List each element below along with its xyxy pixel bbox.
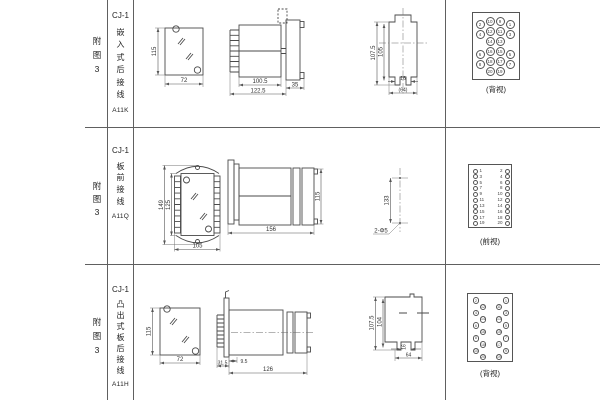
model-label-row3: CJ-1 凸出式板后接线 A11H xyxy=(108,286,133,388)
dim-flange-w: 35 xyxy=(292,83,299,89)
terminal-number-1: 1 xyxy=(480,169,490,174)
label-char: 图 xyxy=(93,195,102,204)
terminal-pin xyxy=(505,180,510,185)
dim-hole-span: 133 xyxy=(385,195,391,206)
terminal-11: 11 xyxy=(496,304,503,311)
model-name: CJ-1 xyxy=(112,147,129,155)
dim-rear-w: 64 xyxy=(406,353,412,359)
terminal-6: 6 xyxy=(473,322,480,329)
terminal-17: 17 xyxy=(496,57,505,66)
terminal-number-15: 15 xyxy=(480,210,490,215)
terminal-pin xyxy=(473,221,478,226)
terminal-7: 7 xyxy=(503,335,510,342)
dim-cutout-w: 72 xyxy=(181,78,188,84)
terminal-number-11: 11 xyxy=(480,198,490,203)
model-name: CJ-1 xyxy=(112,12,129,20)
terminal-number-19: 19 xyxy=(480,221,490,226)
terminal-4: 4 xyxy=(473,310,480,317)
terminal-pin xyxy=(473,215,478,220)
terminal-19: 19 xyxy=(496,354,503,361)
terminal-number-4: 4 xyxy=(493,175,503,180)
terminal-3: 3 xyxy=(503,310,510,317)
dim-body-w: 100.5 xyxy=(252,79,268,85)
terminal-number-3: 3 xyxy=(480,175,490,180)
terminal-view-label-row2: (前视) xyxy=(480,236,500,247)
terminal-number-16: 16 xyxy=(493,210,503,215)
label-char: 前 xyxy=(117,174,125,182)
label-char: 后 xyxy=(117,66,125,74)
terminal-number-6: 6 xyxy=(493,181,503,186)
dim-side-len: 156 xyxy=(266,227,277,233)
dim-front-h1: 149 xyxy=(159,199,165,210)
terminal-1: 1 xyxy=(506,20,515,29)
terminal-6: 6 xyxy=(476,50,485,59)
terminal-view-back-row3: 2468101214161820111315171913579 xyxy=(467,293,513,362)
terminal-19: 19 xyxy=(496,67,505,76)
mount-type-label: 板前接线 xyxy=(117,159,125,210)
terminal-pin xyxy=(505,215,510,220)
terminal-pin xyxy=(505,221,510,226)
terminal-14: 14 xyxy=(486,37,495,46)
terminal-20: 20 xyxy=(480,354,487,361)
figure-page: 附图3 附图3 附图3 CJ-1 嵌入式后接线 A11K CJ-1 板前接线 A… xyxy=(0,0,600,400)
terminal-number-10: 10 xyxy=(493,192,503,197)
front-view: 149 125 105 xyxy=(159,166,220,252)
terminal-16: 16 xyxy=(486,47,495,56)
model-code: A11H xyxy=(112,382,129,389)
terminal-13: 13 xyxy=(496,37,505,46)
terminal-number-5: 5 xyxy=(480,181,490,186)
label-char: 3 xyxy=(95,208,100,217)
terminal-1: 1 xyxy=(503,297,510,304)
label-char: 出 xyxy=(117,312,125,320)
terminal-pin xyxy=(505,209,510,214)
mount-type-label: 凸出式板后接线 xyxy=(117,298,125,378)
label-char: 附 xyxy=(93,318,102,327)
terminal-number-12: 12 xyxy=(493,198,503,203)
label-char: 式 xyxy=(117,323,125,331)
mount-type-label: 嵌入式后接线 xyxy=(117,24,125,104)
terminal-2: 2 xyxy=(476,20,485,29)
label-char: 后 xyxy=(117,345,125,353)
side-view: 31.5 9.5 126 xyxy=(217,291,313,376)
terminal-4: 4 xyxy=(476,30,485,39)
dim-front-h2: 125 xyxy=(166,199,172,210)
seal-mark xyxy=(170,318,177,325)
dim-proj: 31.5 xyxy=(218,361,228,367)
terminal-view-label-row1: (背视) xyxy=(486,84,506,95)
label-char: 图 xyxy=(93,51,102,60)
terminal-18: 18 xyxy=(480,341,487,348)
label-char: 附 xyxy=(93,37,102,46)
label-char: 嵌 xyxy=(117,29,125,37)
terminal-pin xyxy=(505,198,510,203)
label-char: 3 xyxy=(95,65,100,74)
terminal-13: 13 xyxy=(496,316,503,323)
terminal-pin xyxy=(505,204,510,209)
terminal-20: 20 xyxy=(486,67,495,76)
terminal-17: 17 xyxy=(496,341,503,348)
terminal-14: 14 xyxy=(480,316,487,323)
fig-label-row3: 附图3 xyxy=(88,318,106,354)
dim-cutout-h: 115 xyxy=(152,46,158,56)
panel-cutout-view: 115 72 xyxy=(147,306,201,365)
terminal-3: 3 xyxy=(506,30,515,39)
fig-label-row2: 附图3 xyxy=(88,182,106,216)
seal-mark xyxy=(178,38,185,45)
dim-front-w: 105 xyxy=(192,244,203,250)
terminal-number-13: 13 xyxy=(480,204,490,209)
dim-stud: 9.5 xyxy=(241,359,248,365)
terminal-10: 10 xyxy=(473,348,480,355)
terminal-9: 9 xyxy=(503,348,510,355)
label-char: 板 xyxy=(117,163,125,171)
label-char: 线 xyxy=(117,198,125,206)
terminal-12: 12 xyxy=(480,304,487,311)
terminal-number-2: 2 xyxy=(493,169,503,174)
terminal-7: 7 xyxy=(506,60,515,69)
side-view: 156 115 xyxy=(228,160,324,235)
terminal-5: 5 xyxy=(503,322,510,329)
terminal-number-14: 14 xyxy=(493,204,503,209)
terminal-view-back-row1: 2109141211314136161558181772019 xyxy=(472,12,520,80)
dim-rear-w: (64) xyxy=(399,88,408,94)
seal-mark xyxy=(182,336,189,343)
label-char: 线 xyxy=(117,367,125,375)
terminal-8: 8 xyxy=(473,335,480,342)
model-label-row1: CJ-1 嵌入式后接线 A11K xyxy=(108,12,133,114)
terminal-11: 11 xyxy=(496,27,505,36)
model-label-row2: CJ-1 板前接线 A11Q xyxy=(108,147,133,220)
terminal-pin xyxy=(473,186,478,191)
terminal-16: 16 xyxy=(480,329,487,336)
label-char: 板 xyxy=(117,334,125,342)
hole-note: 2-Φ5 xyxy=(374,229,388,235)
terminal-15: 15 xyxy=(496,329,503,336)
terminal-pin xyxy=(473,204,478,209)
label-char: 接 xyxy=(117,186,125,194)
model-code: A11K xyxy=(112,108,129,115)
dim-rear-h1: 107.5 xyxy=(371,45,377,61)
terminal-10: 10 xyxy=(486,17,495,26)
dim-cutout-h: 115 xyxy=(147,326,153,336)
label-char: 图 xyxy=(93,332,102,341)
dim-rear-h2: 105 xyxy=(379,46,385,57)
terminal-pin xyxy=(473,169,478,174)
seal-mark xyxy=(191,193,198,200)
drilling-plan: 133 2-Φ5 xyxy=(373,168,408,235)
dim-side-h: 115 xyxy=(316,191,322,201)
rear-profile-view: 107.5 105 16 (64) xyxy=(371,8,427,95)
label-char: 接 xyxy=(117,356,125,364)
dim-rear-h2: 104 xyxy=(378,316,384,327)
label-char: 线 xyxy=(117,91,125,99)
grid-vline-3 xyxy=(445,0,446,400)
dim-rear-gap: 16 xyxy=(402,344,408,350)
terminal-18: 18 xyxy=(486,57,495,66)
terminal-number-7: 7 xyxy=(480,186,490,191)
terminal-pin xyxy=(473,198,478,203)
terminal-number-18: 18 xyxy=(493,216,503,221)
terminal-number-17: 17 xyxy=(480,216,490,221)
terminal-5: 5 xyxy=(506,50,515,59)
label-char: 式 xyxy=(117,54,125,62)
row3-drawings: 115 72 31.5 9.5 126 xyxy=(133,265,445,400)
row1-drawings: 115 72 100.5 122.5 35 xyxy=(133,0,445,127)
label-char: 接 xyxy=(117,79,125,87)
terminal-12: 12 xyxy=(486,27,495,36)
dim-rear-gap: 16 xyxy=(400,76,406,82)
label-char: 入 xyxy=(117,41,125,49)
terminal-pin xyxy=(473,192,478,197)
dim-rear-h1: 107.5 xyxy=(370,315,376,331)
terminal-number-9: 9 xyxy=(480,192,490,197)
row2-drawings: 149 125 105 156 115 133 2 xyxy=(133,128,445,264)
terminal-8: 8 xyxy=(476,60,485,69)
seal-mark xyxy=(186,53,193,60)
terminal-15: 15 xyxy=(496,47,505,56)
terminal-pin xyxy=(473,174,478,179)
dim-overall-w: 122.5 xyxy=(250,89,266,95)
model-code: A11Q xyxy=(112,214,129,221)
terminal-pin xyxy=(505,174,510,179)
terminal-2: 2 xyxy=(473,297,480,304)
label-char: 附 xyxy=(93,182,102,191)
dim-len: 126 xyxy=(263,367,274,373)
fig-label-row1: 附图3 xyxy=(88,37,106,73)
rear-profile-view: 107.5 104 16 64 xyxy=(370,294,430,361)
side-view: 100.5 122.5 35 xyxy=(230,9,304,96)
dim-cutout-w: 72 xyxy=(177,357,184,363)
seal-mark xyxy=(200,213,207,220)
terminal-pin xyxy=(505,192,510,197)
terminal-pin xyxy=(473,209,478,214)
label-char: 3 xyxy=(95,346,100,355)
terminal-pin xyxy=(473,180,478,185)
terminal-9: 9 xyxy=(496,17,505,26)
terminal-number-20: 20 xyxy=(493,221,503,226)
terminal-pin xyxy=(505,169,510,174)
label-char: 凸 xyxy=(117,301,125,309)
terminal-pin xyxy=(505,186,510,191)
terminal-view-label-row3: (背视) xyxy=(480,368,500,379)
terminal-view-front-row2: 1357911131517192468101214161820 xyxy=(468,164,512,228)
model-name: CJ-1 xyxy=(112,286,129,294)
terminal-number-8: 8 xyxy=(493,186,503,191)
panel-cutout-view: 115 72 xyxy=(152,26,203,87)
